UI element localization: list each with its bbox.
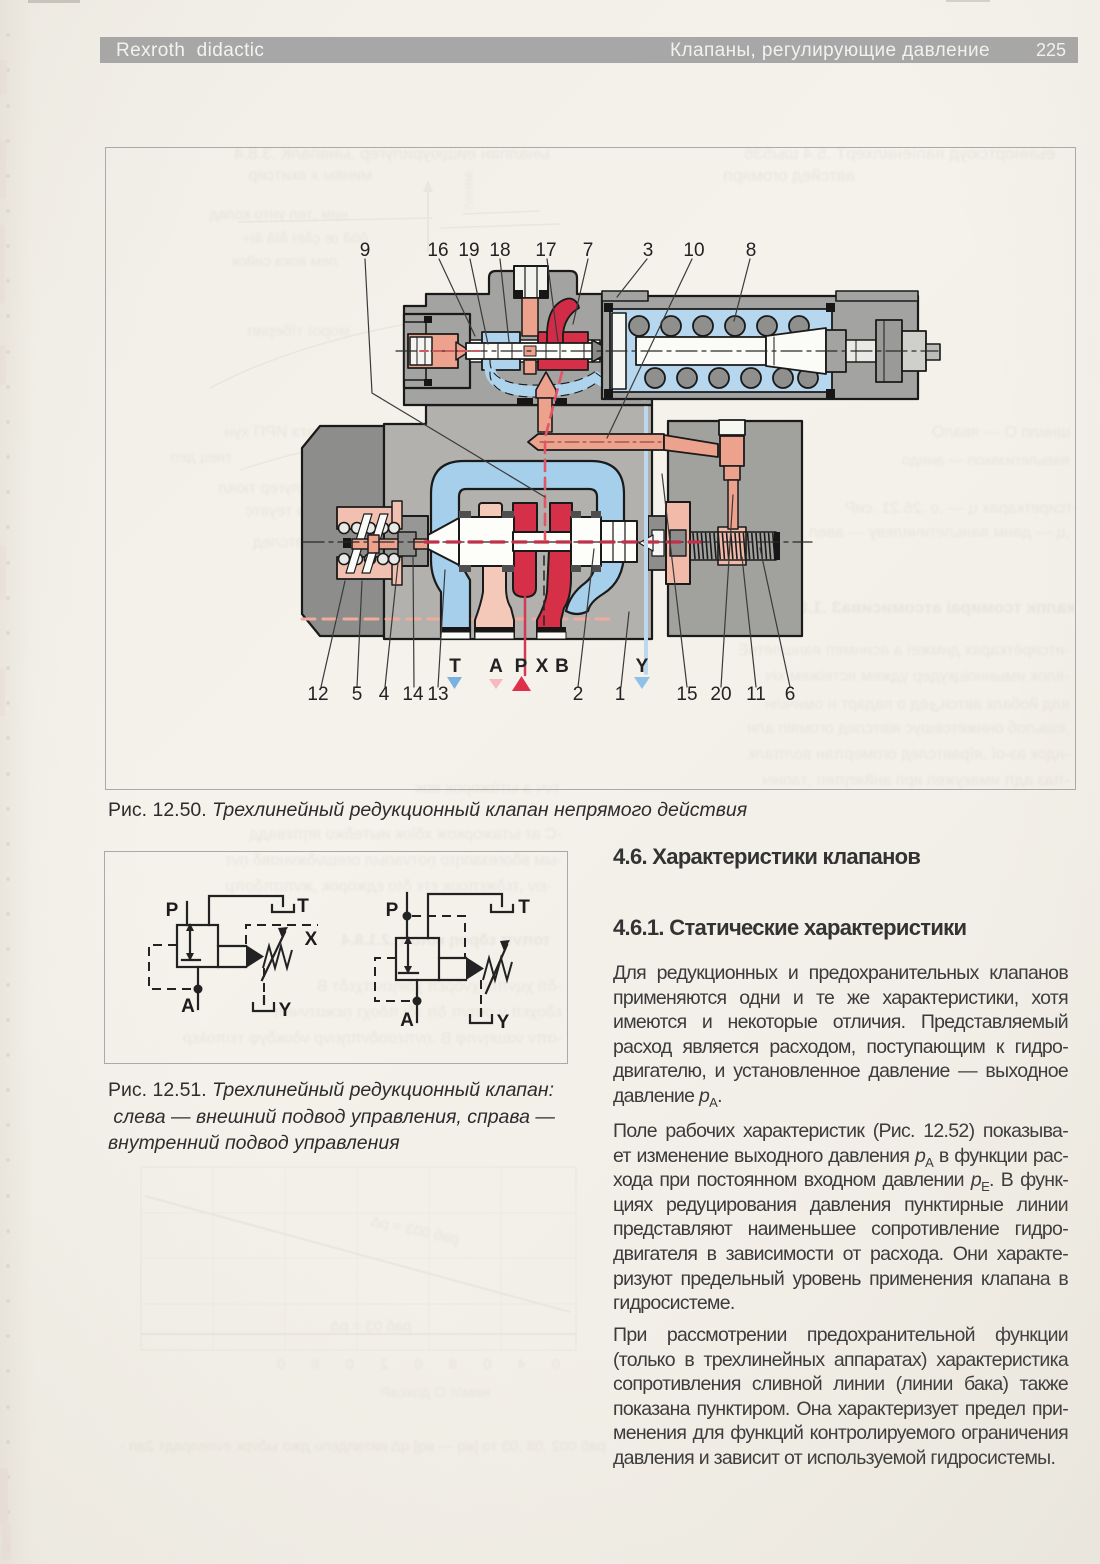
- svg-text:T: T: [518, 897, 530, 918]
- svg-text:2: 2: [573, 684, 584, 705]
- svg-text:A: A: [181, 996, 195, 1017]
- svg-text:Y: Y: [279, 1000, 292, 1021]
- svg-text:P: P: [166, 900, 179, 921]
- svg-text:12: 12: [307, 684, 328, 705]
- svg-text:20: 20: [710, 684, 731, 705]
- svg-text:4: 4: [379, 684, 390, 705]
- svg-text:Y: Y: [497, 1012, 510, 1033]
- svg-text:10: 10: [683, 240, 704, 261]
- svg-text:15: 15: [676, 684, 697, 705]
- svg-text:P: P: [515, 656, 528, 677]
- svg-text:6: 6: [785, 684, 796, 705]
- svg-text:A: A: [400, 1010, 414, 1031]
- svg-text:5: 5: [352, 684, 363, 705]
- svg-text:1: 1: [615, 684, 626, 705]
- svg-text:19: 19: [458, 240, 479, 261]
- svg-text:T: T: [449, 656, 461, 677]
- svg-text:X: X: [305, 929, 318, 950]
- svg-text:8: 8: [746, 240, 757, 261]
- svg-text:Y: Y: [636, 656, 649, 677]
- svg-text:13: 13: [427, 684, 448, 705]
- svg-text:11: 11: [746, 684, 766, 705]
- svg-text:X: X: [536, 656, 549, 677]
- svg-text:18: 18: [489, 240, 510, 261]
- svg-text:9: 9: [360, 240, 371, 261]
- svg-text:7: 7: [583, 240, 594, 261]
- svg-text:3: 3: [643, 240, 654, 261]
- svg-text:B: B: [555, 656, 569, 677]
- svg-text:16: 16: [427, 240, 448, 261]
- svg-text:T: T: [297, 896, 309, 917]
- svg-text:17: 17: [535, 240, 556, 261]
- svg-text:P: P: [386, 900, 399, 921]
- svg-text:A: A: [489, 656, 503, 677]
- svg-text:14: 14: [402, 684, 424, 705]
